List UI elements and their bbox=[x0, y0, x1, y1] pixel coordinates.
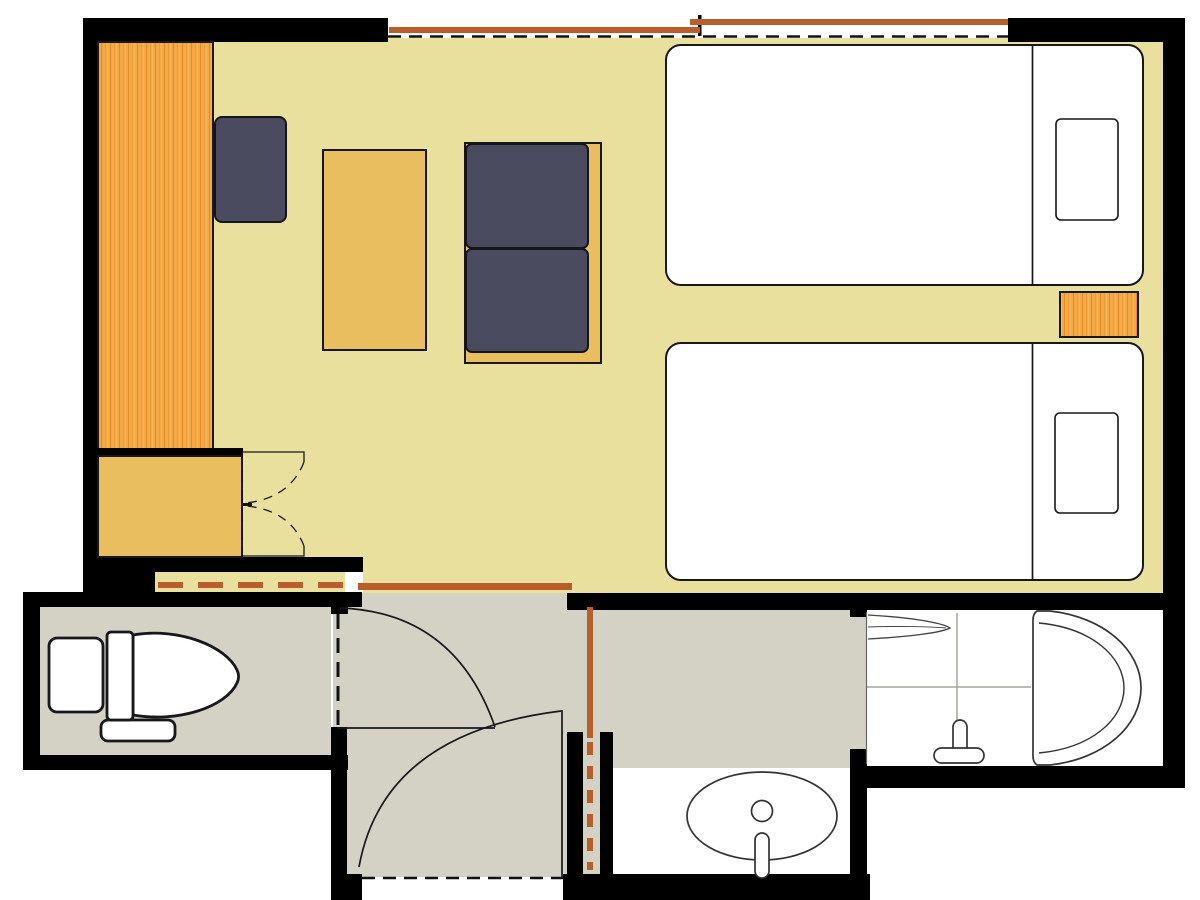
wall-bathroom-stub-top bbox=[850, 593, 867, 617]
wall-toilet-top bbox=[23, 592, 362, 607]
side-table bbox=[323, 150, 426, 350]
sink-faucet-lever bbox=[755, 833, 769, 878]
shower-mixer-horizontal bbox=[934, 748, 984, 763]
wall-top-left bbox=[83, 18, 388, 42]
sink-drain bbox=[752, 801, 773, 822]
window-sash-right bbox=[690, 19, 1008, 25]
nightstand bbox=[1060, 292, 1138, 337]
wall-left bbox=[83, 18, 98, 607]
hall-sliding-door-panel bbox=[358, 583, 572, 590]
wall-top-right bbox=[1008, 18, 1185, 42]
toilet-seat-hinge bbox=[107, 632, 133, 720]
wall-bathroom-bottom bbox=[850, 766, 1185, 788]
toilet-base bbox=[101, 720, 175, 741]
wall-toilet-bottom bbox=[23, 755, 348, 770]
toilet-tank bbox=[49, 638, 103, 712]
bathroom-doorway-floor bbox=[850, 617, 867, 749]
wall-room-bottom-left bbox=[155, 557, 363, 572]
wall-toilet-left bbox=[23, 592, 40, 770]
wall-entry-corner-left bbox=[331, 874, 362, 900]
wall-washroom-left-stub bbox=[600, 732, 613, 878]
sofa-cushion-bottom bbox=[466, 249, 588, 352]
floor-plan-svg bbox=[0, 0, 1200, 900]
lounge-chair bbox=[215, 117, 286, 222]
bed-2-pillow bbox=[1055, 413, 1118, 513]
entrance-outside-gap bbox=[362, 880, 563, 900]
closet-top-edge bbox=[97, 448, 243, 456]
hall-floor bbox=[362, 593, 583, 877]
bed-1-pillow bbox=[1056, 119, 1118, 220]
closet-floor bbox=[98, 456, 242, 557]
wall-hall-washroom-stub bbox=[567, 732, 583, 876]
wall-toilet-door-stub bbox=[331, 592, 348, 614]
wall-hall-left bbox=[331, 727, 347, 888]
sofa-cushion-top bbox=[466, 144, 588, 248]
window-sash-left bbox=[389, 27, 700, 33]
wall-right bbox=[1163, 18, 1185, 788]
washroom-floor bbox=[613, 607, 850, 768]
floor-plan-canvas bbox=[0, 0, 1200, 900]
wardrobe bbox=[98, 42, 213, 450]
washroom-sliding-door-panel bbox=[587, 607, 593, 738]
